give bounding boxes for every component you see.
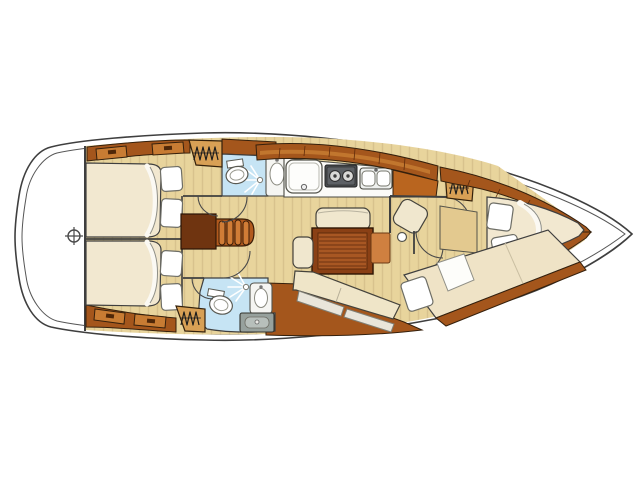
salon-table-top — [318, 233, 367, 269]
vberth-pillow-1 — [486, 202, 513, 231]
fwd-head-shower-head-icon — [243, 284, 248, 289]
galley-burner-2-center — [346, 174, 349, 177]
salon-side-seat — [293, 237, 313, 268]
aft-port-locker-2-handle — [164, 146, 172, 150]
fwd-head-vanity-drain — [255, 320, 259, 324]
aft-port-pillow-1 — [160, 166, 183, 191]
aft-head-sink-basin — [270, 163, 284, 185]
fwd-bulkhead-wall-top — [390, 196, 447, 197]
companionway-landing — [181, 214, 216, 249]
nav-seat — [371, 233, 390, 263]
floor-plan-svg — [0, 0, 640, 480]
yacht-floor-plan — [0, 0, 640, 480]
aft-starboard-pillow-1 — [160, 250, 183, 276]
fwd-cabin-desk — [440, 206, 477, 253]
galley-sink-basin-2 — [377, 171, 390, 186]
aft-port-pillow-2 — [160, 198, 182, 227]
galley-burner-1-center — [333, 174, 336, 177]
salon-forward-bench — [316, 208, 370, 230]
companionway-step-1 — [219, 221, 225, 245]
aft-starboard-locker-2-handle — [147, 319, 155, 324]
fwd-head-sink-tap — [259, 285, 262, 288]
aft-head-shower-head-icon — [257, 177, 262, 182]
companionway-step-3 — [235, 220, 241, 245]
floor-plan-shapes — [15, 133, 632, 341]
fwd-passage-post — [398, 233, 407, 242]
companionway-step-2 — [227, 220, 233, 245]
galley-sink-faucet — [374, 168, 378, 172]
companionway-step-4 — [243, 221, 249, 245]
galley-sink-basin-1 — [362, 171, 375, 186]
fwd-head-sink-basin — [255, 289, 268, 308]
galley-fridge-handle — [301, 184, 306, 189]
aft-port-locker-1-handle — [108, 150, 116, 155]
